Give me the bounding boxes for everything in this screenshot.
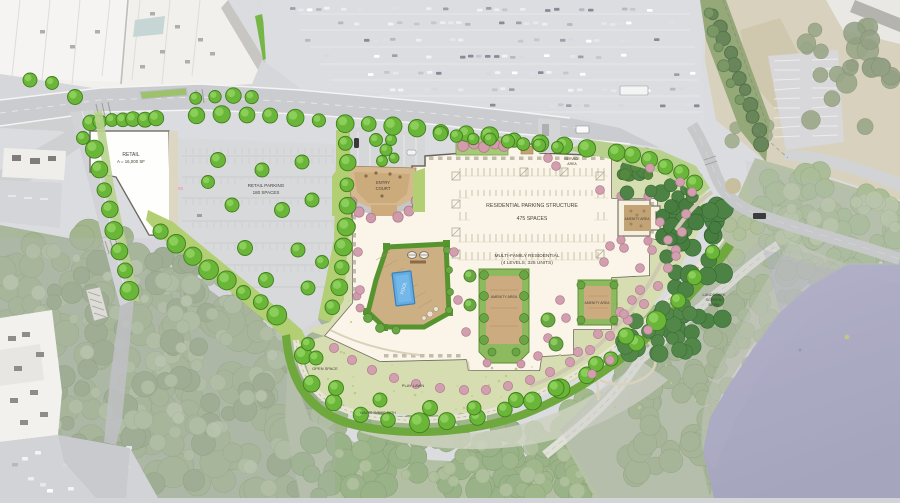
svg-text:(4 LEVELS; 325 UNITS): (4 LEVELS; 325 UNITS) (501, 260, 553, 266)
svg-text:SERVICE: SERVICE (564, 157, 580, 161)
svg-text:OPEN SPACE: OPEN SPACE (312, 366, 338, 371)
svg-text:ENTRY: ENTRY (376, 180, 390, 185)
svg-text:RESIDENTIAL PARKING STRUCTURE: RESIDENTIAL PARKING STRUCTURE (486, 203, 578, 209)
svg-text:AMENITY AREA: AMENITY AREA (585, 301, 611, 305)
svg-text:180 SPACES: 180 SPACES (253, 190, 280, 195)
svg-text:RETAIL: RETAIL (122, 152, 139, 158)
svg-text:WALKING/BIKE PATH: WALKING/BIKE PATH (360, 411, 396, 415)
svg-text:MULTI-FAMILY RESIDENTIAL: MULTI-FAMILY RESIDENTIAL (494, 253, 559, 259)
svg-text:AMENITY AREA: AMENITY AREA (491, 295, 518, 299)
svg-text:SCREEN/: SCREEN/ (706, 298, 724, 302)
svg-text:AREA: AREA (567, 162, 577, 166)
svg-text:RETAIL PARKING: RETAIL PARKING (248, 183, 285, 188)
svg-text:COURT: COURT (376, 186, 391, 191)
svg-text:A = 16,000 SF: A = 16,000 SF (117, 159, 145, 164)
svg-text:AMENITY AREA: AMENITY AREA (625, 217, 651, 221)
svg-text:PLAY LAWN: PLAY LAWN (402, 383, 424, 388)
svg-text:BERM: BERM (709, 303, 720, 307)
svg-text:475 SPACES: 475 SPACES (517, 216, 548, 222)
svg-text:LANDSCAPE: LANDSCAPE (702, 293, 725, 297)
